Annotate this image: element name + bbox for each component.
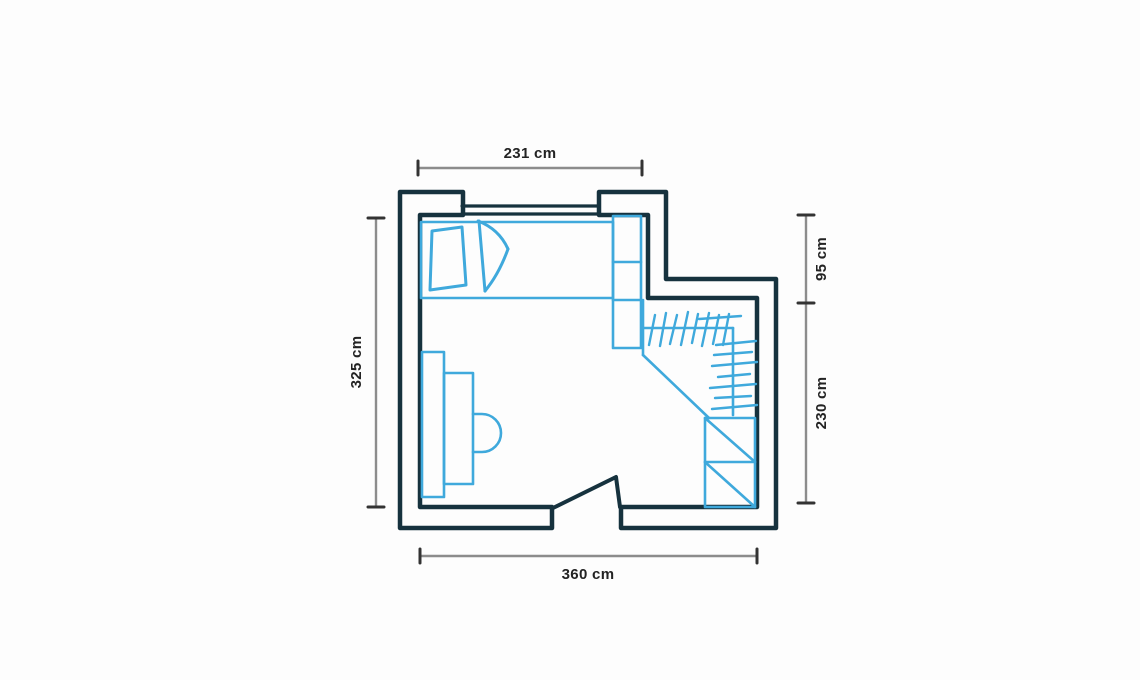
dimension-label-top: 231 cm bbox=[504, 145, 557, 162]
furniture bbox=[421, 216, 757, 507]
dimension-label-bottom: 360 cm bbox=[562, 566, 615, 583]
sideboard bbox=[422, 352, 444, 497]
duvet bbox=[478, 221, 508, 291]
clothes-rail-hatching-top bbox=[649, 312, 741, 346]
floor-plan-canvas: 231 cm 325 cm 95 cm 230 cm 360 cm bbox=[0, 0, 1140, 680]
wardrobe-front-diagonal bbox=[643, 355, 709, 418]
shelf-column bbox=[613, 216, 641, 348]
desk bbox=[444, 373, 473, 484]
wall-right-section bbox=[599, 192, 776, 528]
floor-plan-sketch: 231 cm 325 cm 95 cm 230 cm 360 cm bbox=[0, 0, 1140, 680]
window-top-wall bbox=[462, 206, 599, 214]
dimension-label-right-upper: 95 cm bbox=[813, 237, 830, 281]
dimension-label-left: 325 cm bbox=[348, 336, 365, 389]
chair bbox=[473, 414, 501, 452]
exterior-walls bbox=[400, 192, 776, 528]
door-leaf bbox=[553, 477, 620, 508]
dimension-label-right-lower: 230 cm bbox=[813, 377, 830, 430]
pillow bbox=[430, 227, 466, 290]
corner-wardrobe bbox=[643, 300, 757, 418]
drawer-unit bbox=[705, 418, 755, 507]
